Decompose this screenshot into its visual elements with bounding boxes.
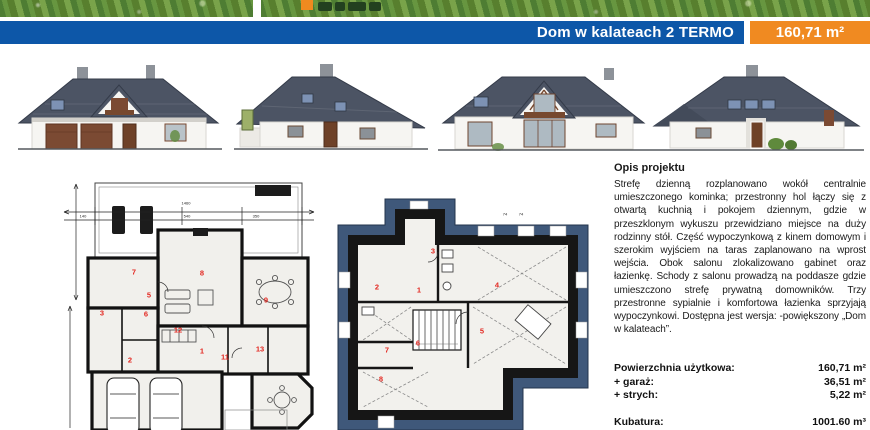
dimension-label: 74	[519, 212, 523, 217]
roof-window	[51, 100, 64, 110]
winter-garden	[242, 110, 253, 130]
grass-photo-banner-right	[261, 0, 870, 17]
spec-row-cubature: Kubatura: 1001.60 m³	[614, 416, 866, 430]
room-number-label: 7	[385, 346, 389, 355]
dormer-window	[534, 94, 555, 114]
roof-window	[762, 100, 775, 109]
publisher-logo-mark	[301, 0, 313, 10]
room-number-label: 12	[174, 326, 182, 335]
attic-floor-plan: 321456787474	[318, 192, 613, 430]
area-value: 160,71 m²	[776, 24, 844, 41]
ground-floor-plan: 789536121111321460540350140	[62, 172, 317, 430]
publisher-logo-fragment	[318, 2, 332, 11]
chimney	[604, 68, 614, 80]
fireplace	[193, 228, 208, 236]
project-title-bar: Dom w kalateach 2 TERMO	[0, 21, 744, 44]
side-door	[324, 122, 337, 147]
garage-door	[81, 124, 112, 149]
roof-window	[745, 100, 758, 109]
entry-door	[123, 124, 136, 149]
room-number-label: 7	[132, 268, 136, 277]
entry-door	[751, 122, 763, 148]
balcony-rail	[524, 112, 565, 118]
elevation-left-side-drawing	[648, 58, 866, 158]
spec-value: 1001.60 m³	[812, 416, 866, 430]
dimension-label: 1460	[182, 201, 191, 206]
project-description: Opis projektu Strefę dzienną rozplanowan…	[614, 162, 866, 336]
window	[288, 126, 303, 137]
spec-table: Powierzchnia użytkowa: 160,71 m² + garaż…	[614, 362, 866, 429]
window	[360, 128, 375, 139]
room-number-label: 9	[264, 296, 268, 305]
elevation-rear-drawing	[436, 58, 651, 158]
dimension-label: 74	[503, 212, 507, 217]
spec-label: Kubatura:	[614, 416, 664, 430]
roof-window	[302, 94, 313, 103]
dimension-label: 350	[253, 214, 260, 219]
pergola	[255, 185, 291, 196]
spec-label: + garaż:	[614, 376, 654, 390]
shutter	[824, 110, 834, 126]
spec-row-attic: + strych: 5,22 m²	[614, 389, 866, 403]
room-number-label: 13	[256, 345, 264, 354]
room-number-label: 3	[431, 247, 435, 256]
roof-window	[728, 100, 741, 109]
area-badge: 160,71 m²	[750, 21, 870, 44]
room-number-label: 1	[200, 347, 204, 356]
room-number-label: 5	[480, 327, 484, 336]
spec-row-usable-area: Powierzchnia użytkowa: 160,71 m²	[614, 362, 866, 376]
catalog-page: { "banner": { "title": "Dom w kalateach …	[0, 0, 870, 430]
publisher-logo-fragment	[335, 2, 345, 11]
spec-label: Powierzchnia użytkowa:	[614, 362, 735, 376]
description-body: Strefę dzienną rozplanowano wokół centra…	[614, 178, 866, 336]
room-number-label: 8	[200, 269, 204, 278]
room-number-label: 6	[416, 339, 420, 348]
room-number-label: 8	[379, 375, 383, 384]
room-number-label: 1	[417, 286, 421, 295]
spec-value: 5,22 m²	[830, 389, 866, 403]
room-number-label: 5	[147, 291, 151, 300]
plant	[170, 130, 180, 142]
elevation-front-drawing	[15, 58, 225, 158]
wall	[240, 128, 262, 147]
dimension-label: 140	[80, 214, 87, 219]
roof	[237, 77, 425, 128]
spec-label: + strych:	[614, 389, 658, 403]
window	[696, 128, 711, 138]
room-number-label: 3	[100, 309, 104, 318]
glass-door	[468, 122, 492, 146]
project-title: Dom w kalateach 2 TERMO	[537, 24, 734, 41]
room-number-label: 4	[495, 281, 499, 290]
balcony-rail	[105, 110, 134, 115]
publisher-logo-fragment	[369, 2, 381, 11]
shrub	[785, 140, 797, 150]
spec-value: 160,71 m²	[818, 362, 866, 376]
spec-row-garage: + garaż: 36,51 m²	[614, 376, 866, 390]
room-number-label: 11	[221, 353, 229, 362]
grass-photo-banner-left	[0, 0, 253, 17]
window	[596, 124, 616, 137]
roof-window	[474, 97, 488, 107]
spec-value: 36,51 m²	[824, 376, 866, 390]
garage-door	[46, 124, 77, 149]
roof-window	[335, 102, 346, 111]
room-number-label: 6	[144, 310, 148, 319]
description-heading: Opis projektu	[614, 162, 866, 174]
room-number-label: 2	[128, 356, 132, 365]
shrub	[768, 138, 784, 150]
dormer-window	[111, 98, 128, 111]
elevation-right-side-drawing	[232, 58, 430, 158]
room-number-label: 2	[375, 283, 379, 292]
publisher-logo-fragment	[348, 2, 366, 11]
dimension-label: 540	[184, 214, 191, 219]
terrace-glass-doors	[524, 120, 565, 147]
stairs	[413, 310, 461, 350]
